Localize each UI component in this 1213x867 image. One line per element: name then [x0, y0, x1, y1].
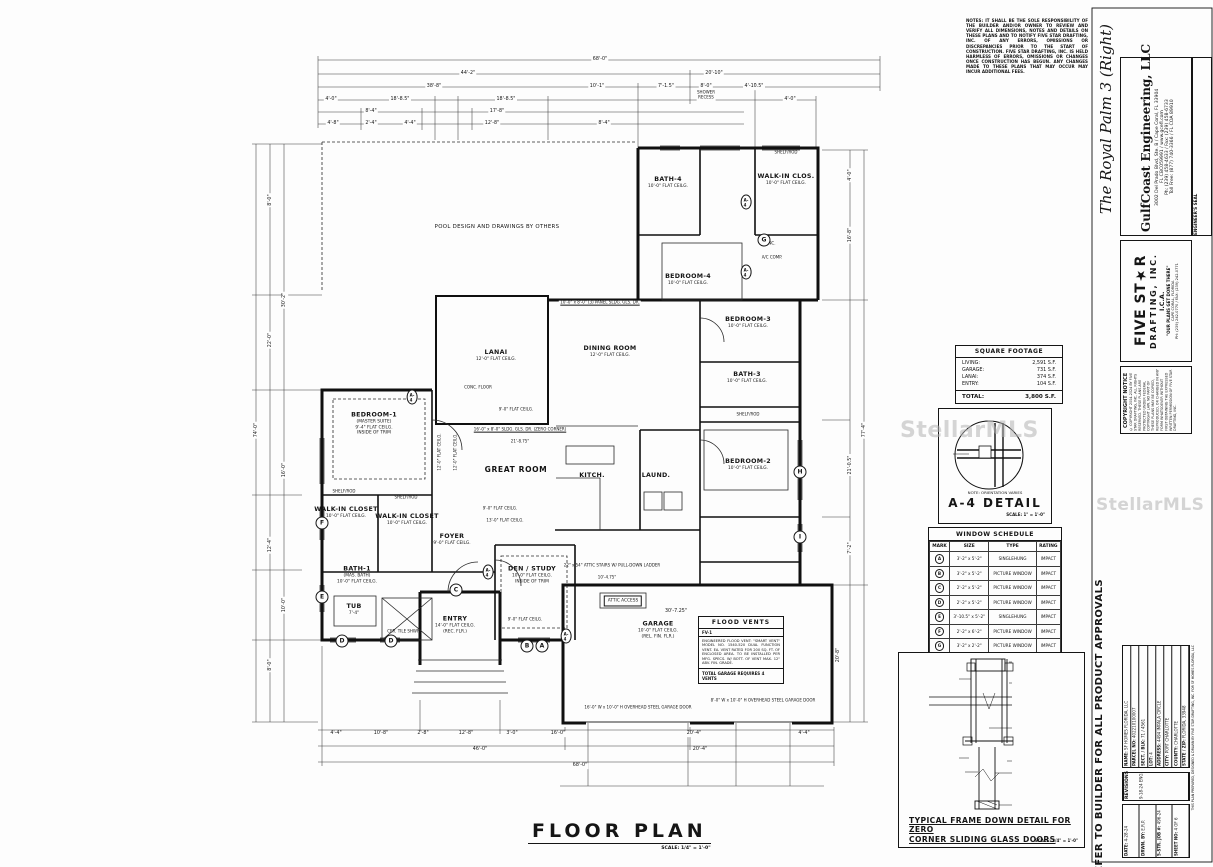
annotation-label: 20'-4" [685, 731, 702, 737]
annotation-label: 8'-0" W x 10'-0" H OVERHEAD STEEL GARAGE… [709, 699, 817, 704]
annotation-label: 9'-0" FLAT CEILG. [499, 408, 534, 413]
a4-detail-tag: A-4 [483, 565, 494, 580]
general-notes: NOTES: IT SHALL BE THE SOLE RESPONSIBILI… [966, 18, 1088, 74]
a4-detail-tag: A-4 [741, 195, 752, 210]
floor-plan-sheet: BATH-4 10'-0" FLAT CEILG. WALK-IN CLOS. … [0, 0, 1213, 867]
photo-watermark: StellarMLS [900, 418, 1039, 443]
annotation-label: 16'-0" x 8'-0" SLDG. GLS. DR. (ZERO CORN… [472, 428, 567, 433]
annotation-label: 3'-0" [505, 731, 519, 737]
room-label: GREAT ROOM [485, 465, 548, 475]
revisions-block: REVISIONS 9-18-24 ENG. REV. LIV. & PKG. … [1122, 772, 1190, 801]
annotation-label: 16'-8" [848, 226, 854, 243]
project-info-field: LOT: 4 [1148, 646, 1156, 767]
square-footage-row: GARAGE:731 S.F. [962, 367, 1056, 374]
flood-vents-mark: FV-1 [699, 629, 783, 637]
window-schedule-title: WINDOW SCHEDULE [929, 528, 1061, 541]
annotation-label: 8'-4" [364, 109, 378, 115]
annotation-label: 44'-2" [459, 71, 476, 77]
sheet-title-text: FLOOR PLAN [528, 820, 711, 844]
annotation-label: RECESS [697, 96, 716, 101]
annotation-label: 9'-0" FLAT CEILG. [508, 618, 543, 623]
sheet-info-field: DRWN. BY: E.R.P. [1140, 805, 1157, 857]
square-footage-row: LANAI:374 S.F. [962, 374, 1056, 381]
drafter-ica: I.C.A. [1158, 243, 1166, 359]
window-marker: D [385, 635, 398, 648]
annotation-label: 4'-4" [797, 731, 811, 737]
room-label: WALK-IN CLOS. 10'-0" FLAT CEILG. [758, 173, 815, 187]
annotation-label: 4'-0" [848, 168, 854, 182]
square-footage-row: LIVING:2,591 S.F. [962, 360, 1056, 367]
window-marker: C [450, 584, 463, 597]
window-schedule-row: A 3'-2" x 5'-2" SINGLEHUNG IMPACT [930, 552, 1061, 567]
project-info-field: COUNTY: CHARLOTTE [1173, 646, 1181, 767]
annotation-label: SHELF/ROD [333, 490, 356, 495]
annotation-label: 16'-0" W x 10'-0" H OVERHEAD STEEL GARAG… [583, 706, 693, 711]
annotation-label: 18'-8.5" [495, 97, 517, 103]
photo-watermark: StellarMLS [1096, 495, 1204, 515]
annotation-label: ATTIC ACCESS [604, 595, 642, 606]
annotation-label: 12'-8" [483, 121, 500, 127]
annotation-label: 8'-4" [597, 121, 611, 127]
room-label: FOYER 9'-0" FLAT CEILG. [433, 533, 470, 547]
room-label: BATH-3 10'-0" FLAT CEILG. [727, 371, 767, 385]
window-schedule-row: D 2'-2" x 5'-2" PICTURE WINDOW IMPACT [930, 595, 1061, 610]
window-marker: D [336, 635, 349, 648]
room-label: LANAI 12'-0" FLAT CEILG. [476, 349, 516, 363]
copyright-body: © COPYRIGHT 2004-2024 BY FIVE STAR DRAFT… [1129, 369, 1178, 431]
window-marker: A [536, 640, 549, 653]
annotation-label: 4'-4" [403, 121, 417, 127]
annotation-label: 12'-0" FLAT CEILG. [454, 433, 459, 470]
room-label: BEDROOM-2 10'-0" FLAT CEILG. [725, 458, 771, 472]
room-label: BATH-1 (MAS. BATH) 10'-0" FLAT CEILG. [337, 565, 377, 584]
flood-vents-table: FLOOD VENTS FV-1 ENGINEERED FLOOD VENT: … [698, 616, 784, 684]
revisions-header: REVISIONS [1123, 773, 1138, 800]
a4-detail-scale: SCALE: 1" = 1'-0" [1006, 512, 1045, 517]
engineer-tollfree: Toll Free: (877) 740-3366 / FL COA 89910 [1170, 61, 1175, 233]
annotation-label: 30'-2" [282, 291, 288, 308]
annotation-label: 17'-8" [488, 109, 505, 115]
annotation-label: 10'-0" x 8'-0" (3) PANEL SLDG. GLS. DR. [559, 301, 641, 306]
a4-detail-tag: A-4 [741, 265, 752, 280]
a4-detail-note: NOTE: ORIENTATION VARIES [939, 490, 1051, 495]
frame-down-detail: TYPICAL FRAME DOWN DETAIL FOR ZERO CORNE… [898, 652, 1085, 848]
annotation-label: 7'-1.5" [657, 84, 676, 90]
annotation-label: POOL DESIGN AND DRAWINGS BY OTHERS [435, 224, 560, 230]
annotation-label: 20'-8" [836, 646, 842, 663]
room-label: BEDROOM-1 (MASTER SUITE) 9'-4" FLAT CEIL… [351, 412, 397, 437]
drafter-brand2: DRAFTING, INC. [1149, 243, 1158, 359]
window-schedule-row: E 3'-10.5" x 5'-2" SINGLEHUNG IMPACT [930, 610, 1061, 625]
project-info-field: NAME: SF HOMES FLORIDA, LLC [1123, 646, 1131, 767]
project-info-field: CITY: PORT CHARLOTTE [1164, 646, 1172, 767]
room-label: DINING ROOM 12'-0" FLAT CEILG. [584, 345, 637, 359]
room-label: DEN / STUDY 10'-0" FLAT CEILG. INSIDE OF… [508, 565, 556, 584]
annotation-label: 22'-0" [268, 331, 274, 348]
drafter-brand: FIVE ST★R [1133, 243, 1149, 359]
sheet-info-field: 5-STR. JOB #: 496-24 [1156, 805, 1173, 857]
annotation-label: 21'-0.5" [848, 454, 854, 476]
window-marker: F [316, 517, 329, 530]
project-info-block: NAME: SF HOMES FLORIDA, LLC PARCEL NO: 4… [1122, 645, 1190, 768]
annotation-label: 77'-4" [862, 421, 868, 438]
annotation-label: 7'-2" [848, 541, 854, 555]
annotation-label: CONC. FLOOR [464, 386, 492, 391]
revision-entry: 9-18-24 ENG. REV. LIV. & PKG. DR. [1138, 773, 1189, 800]
engineer-seal-box: ENGINEER'S SEAL [1192, 57, 1212, 236]
room-label: BATH-4 10'-0" FLAT CEILG. [648, 176, 688, 190]
window-marker: B [521, 640, 534, 653]
window-schedule-row: B 3'-2" x 5'-2" PICTURE WINDOW IMPACT [930, 566, 1061, 581]
annotation-label: 10'-1" [588, 84, 605, 90]
annotation-label: 21'-8.75" [509, 440, 530, 445]
sheet-info-block: DATE: 4-28-24 DRWN. BY: E.R.P. 5-STR. JO… [1122, 804, 1190, 858]
square-footage-row: ENTRY:104 S.F. [962, 381, 1056, 388]
annotation-label: 68'-0" [571, 763, 588, 769]
a4-detail-tag: A-4 [561, 629, 572, 644]
sheet-title: FLOOR PLAN SCALE: 1/4" = 1'-0" [528, 820, 711, 851]
annotation-label: 12'-8" [457, 731, 474, 737]
annotation-label: 13'-0" FLAT CEILG. [486, 519, 523, 524]
square-footage-total: TOTAL:3,800 S.F. [956, 390, 1062, 403]
engineer-name: GulfCoast Engineering, LLC [1137, 61, 1155, 233]
annotation-label: 4'-10.5" [743, 84, 765, 90]
copyright-notice: COPYRIGHT NOTICE © COPYRIGHT 2004-2024 B… [1120, 366, 1192, 434]
annotation-label: 20'-10" [704, 71, 724, 77]
window-marker: H [794, 466, 807, 479]
frame-detail-scale: SCALE: 3/4" = 1'-0" [1035, 838, 1078, 843]
annotation-label: SHELF/ROD [395, 496, 418, 501]
project-info-field: STATE / ZIP: FLORIDA, 33948 [1181, 646, 1189, 767]
room-label: LAUND. [642, 472, 671, 480]
engineer-title-block: GulfCoast Engineering, LLC 3002 Del Prad… [1120, 57, 1192, 236]
room-label: KITCH. [579, 472, 605, 480]
room-label: BEDROOM-3 10'-0" FLAT CEILG. [725, 316, 771, 330]
window-marker: G [758, 234, 771, 247]
square-footage-title: SQUARE FOOTAGE [956, 346, 1062, 358]
annotation-label: 4'-0" [324, 97, 338, 103]
project-info-field: PARCEL NO: 402210100007 [1131, 646, 1139, 767]
annotation-label: 10'-4.75" [596, 576, 617, 581]
window-marker: E [316, 591, 329, 604]
annotation-label: 46'-0" [471, 747, 488, 753]
annotation-label: 12'-0" FLAT CEILG. [438, 433, 443, 470]
annotation-label: 16'-0" [282, 461, 288, 478]
annotation-label: SHELF/ROD [737, 413, 760, 418]
refer-to-builder-note: REFER TO BUILDER FOR ALL PRODUCT APPROVA… [1094, 598, 1116, 862]
window-schedule-header-row: MARK SIZE TYPE RATING [930, 542, 1061, 552]
annotation-label: 4'-0" [783, 97, 797, 103]
annotation-label: 68'-0" [591, 57, 608, 63]
room-label: ENTRY 14'-0" FLAT CEILG. (REC. FLR.) [435, 615, 475, 634]
window-schedule-row: F 2'-2" x 6'-2" PICTURE WINDOW IMPACT [930, 624, 1061, 639]
annotation-label: 22" x 54" ATTIC STAIRS W/ PULL-DOWN LADD… [564, 564, 660, 569]
a4-detail-tag: A-4 [407, 390, 418, 405]
annotation-label: A/C COMP. [762, 256, 783, 261]
flood-vents-title: FLOOD VENTS [699, 617, 783, 629]
annotation-label: 4'-8" [326, 121, 340, 127]
engineer-seal-label: ENGINEER'S SEAL [1193, 58, 1211, 235]
annotation-label: 10'-0" [282, 596, 288, 613]
window-schedule-row: G 3'-2" x 2'-2" PICTURE WINDOW IMPACT [930, 639, 1061, 654]
annotation-label: SHELF/ROD [775, 151, 798, 156]
sheet-info-field: SHEET NO: 4 OF 6 [1173, 805, 1190, 857]
annotation-label: 18'-8.5" [389, 97, 411, 103]
flood-vents-total: TOTAL GARAGE REQUIRES 4 VENTS [699, 668, 783, 683]
annotation-label: 12'-4" [268, 536, 274, 553]
frame-down-drawing [899, 653, 1084, 813]
annotation-label: 20'-4" [691, 747, 708, 753]
window-marker: I [794, 531, 807, 544]
annotation-label: 30'-7.25" [663, 609, 688, 615]
window-schedule-row: C 2'-2" x 5'-2" PICTURE WINDOW IMPACT [930, 581, 1061, 596]
a4-detail-title: A-4 DETAIL [939, 496, 1051, 510]
room-label: GARAGE 10'-0" FLAT CEILG. (REL. FIN. FLR… [638, 620, 678, 639]
annotation-label: 2'-4" [364, 121, 378, 127]
room-label: TUB 7'-4" [346, 603, 361, 617]
room-label: WALK-IN CLOSET 10'-0" FLAT CEILG. [375, 513, 438, 527]
annotation-label: 38'-8" [425, 84, 442, 90]
annotation-label: 8'-0" [268, 658, 274, 672]
annotation-label: 16'-0" [549, 731, 566, 737]
room-label: BEDROOM-4 10'-0" FLAT CEILG. [665, 273, 711, 287]
sheet-title-scale: SCALE: 1/4" = 1'-0" [528, 846, 711, 851]
flood-vents-body: ENGINEERED FLOOD VENT: "SMART VENT" MODE… [699, 637, 783, 668]
project-info-field: SECT. / BLK: 71 / 4561 [1140, 646, 1148, 767]
square-footage-table: SQUARE FOOTAGE LIVING:2,591 S.F. GARAGE:… [955, 345, 1063, 404]
annotation-label: 74'-0" [254, 421, 260, 438]
project-info-field: ADDRESS: 4494 IMPALA CIRCLE [1156, 646, 1164, 767]
drafter-title-block: FIVE ST★R DRAFTING, INC. I.C.A. "OUR PLA… [1120, 240, 1192, 362]
annotation-label: 10'-8" [372, 731, 389, 737]
annotation-label: 4'-4" [329, 731, 343, 737]
annotation-label: 9'-0" FLAT CEILG. [483, 507, 518, 512]
drafter-phone: PH: (239) 242-0770 / FAX: (239) 242-0771 [1175, 243, 1179, 359]
annotation-label: 2'-8" [416, 731, 430, 737]
drafter-micro-note: THIS PLAN PREPARED, DESIGNED & DRAWN BY … [1191, 645, 1199, 858]
annotation-label: 8'-0" [268, 193, 274, 207]
plan-series-title: The Royal Palm 3 (Right) [1092, 10, 1120, 228]
sheet-info-field: DATE: 4-28-24 [1123, 805, 1140, 857]
